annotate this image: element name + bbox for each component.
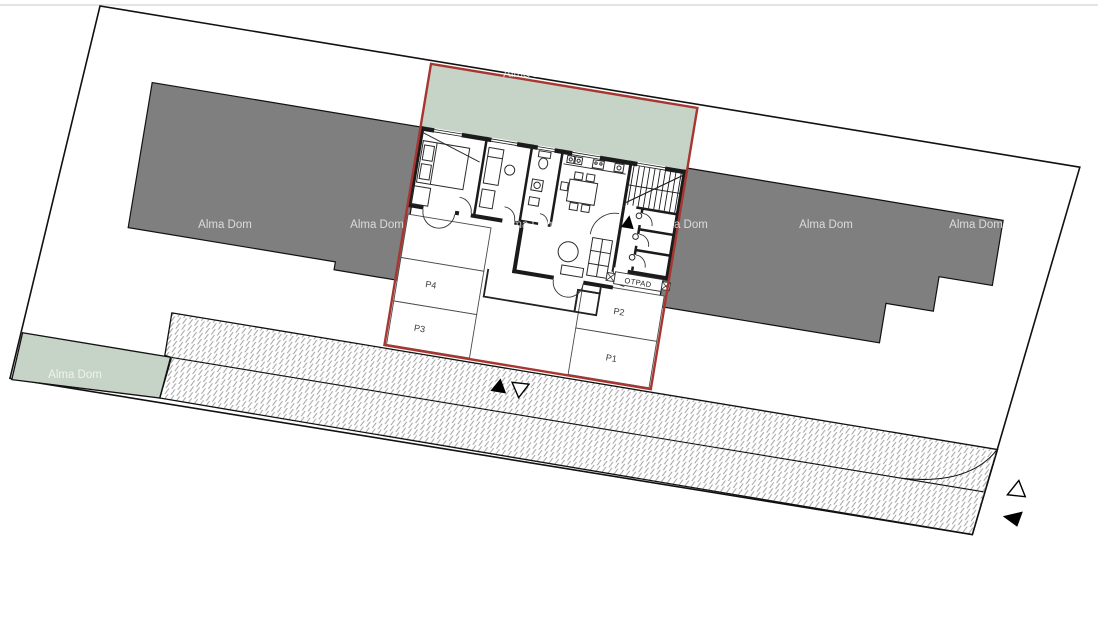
rotated-site-group: P4 P3 P2 P1 xyxy=(10,0,1080,546)
watermark-text: Alma Dom xyxy=(799,219,853,231)
road-access-marker-black-triangle xyxy=(1001,508,1022,527)
parking-label-p2: P2 xyxy=(613,306,626,318)
parking-label-p1: P1 xyxy=(605,352,618,364)
watermark-text: Alma Dom xyxy=(949,219,1003,231)
watermark-text: Alma Dom xyxy=(503,68,557,80)
watermark-text: Alma Dom xyxy=(350,219,404,231)
parking-label-p4: P4 xyxy=(425,279,438,291)
site-plan-drawing: P4 P3 P2 P1 xyxy=(0,0,1098,635)
watermark-text: Alma Dom xyxy=(198,219,252,231)
road-access-markers xyxy=(1001,479,1027,527)
parking-label-p3: P3 xyxy=(413,323,426,335)
watermark-text: Alma Dom xyxy=(654,219,708,231)
watermark-text: Alma Dom xyxy=(502,219,556,231)
road-access-marker-white-triangle xyxy=(1007,479,1027,498)
watermark-text: Alma Dom xyxy=(48,369,102,381)
